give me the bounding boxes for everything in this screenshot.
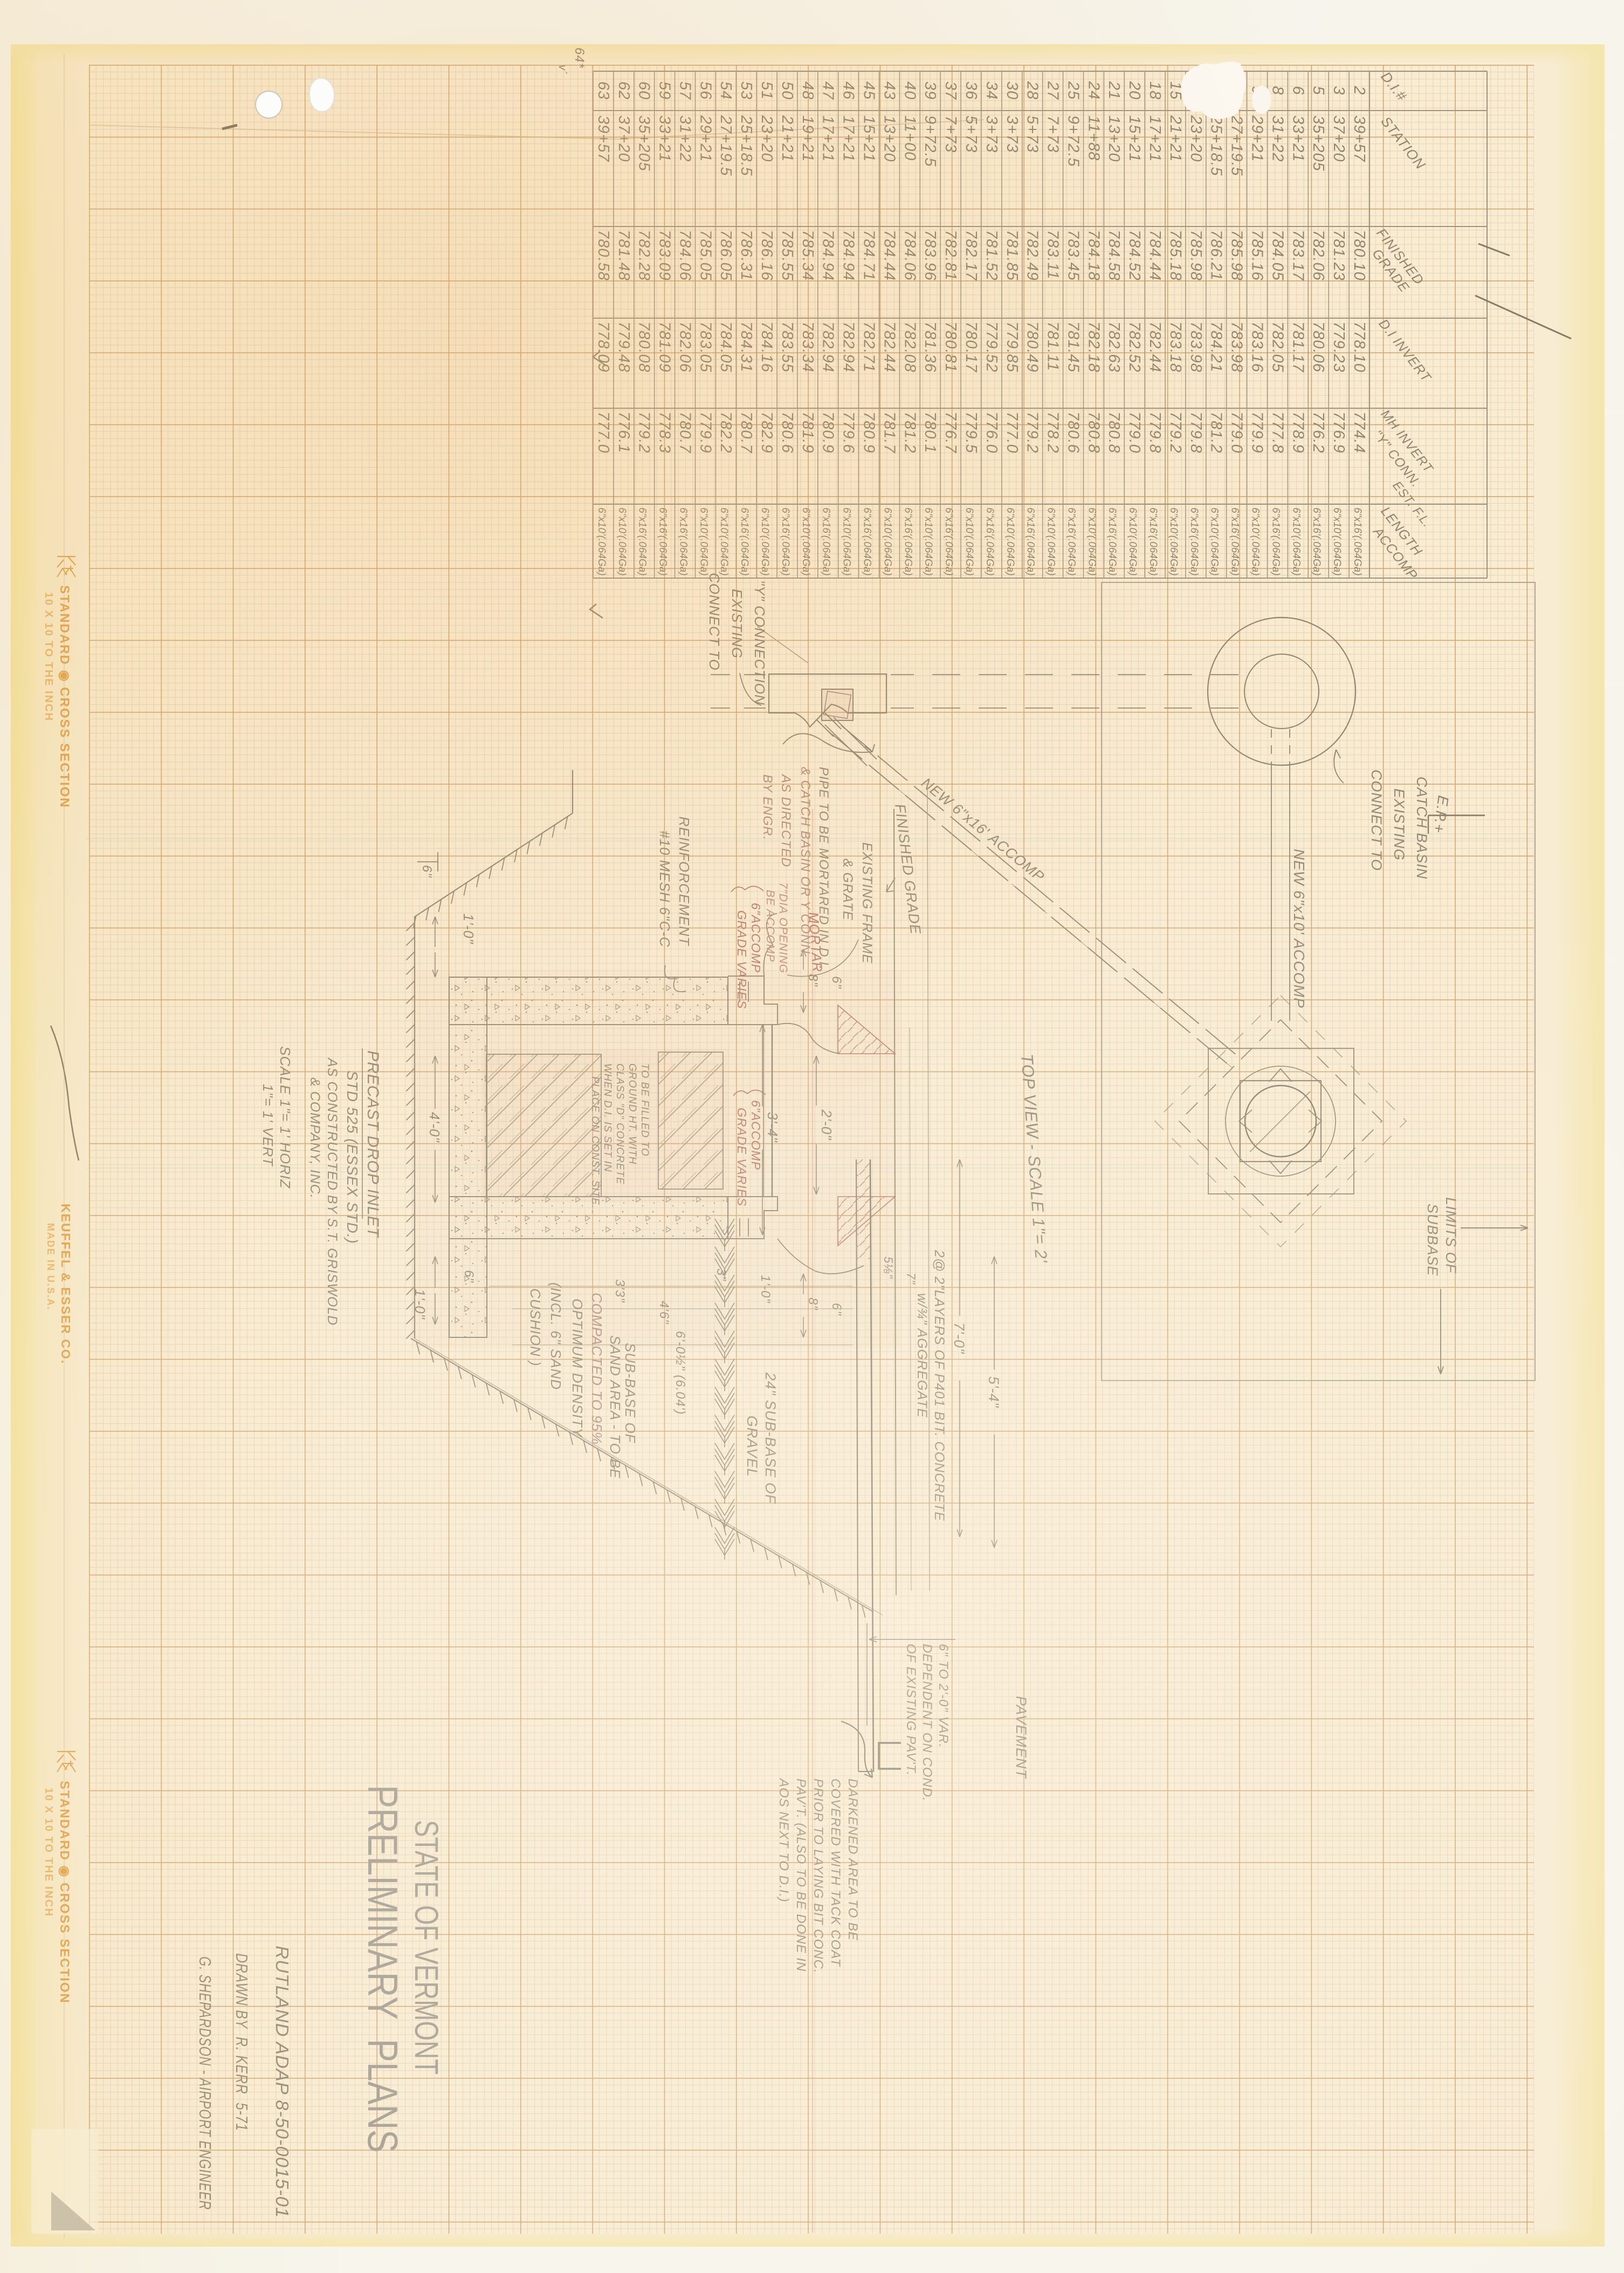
svg-text:784.05: 784.05: [1269, 230, 1286, 281]
svg-text:59: 59: [656, 81, 673, 100]
svg-text:782.17: 782.17: [962, 230, 980, 281]
svg-text:GRADE VARIES: GRADE VARIES: [735, 910, 749, 1009]
svg-text:780.58: 780.58: [595, 230, 612, 281]
svg-text:40: 40: [901, 81, 918, 100]
svg-text:19+21: 19+21: [799, 115, 816, 162]
svg-text:782.44: 782.44: [1146, 321, 1164, 373]
svg-text:29+21: 29+21: [1248, 115, 1265, 162]
svg-text:6"x10'(.064Ga): 6"x10'(.064Ga): [596, 507, 607, 576]
svg-text:WHEN D.I. IS SET IN: WHEN D.I. IS SET IN: [602, 1063, 613, 1172]
svg-text:CONNECT TO: CONNECT TO: [1368, 770, 1385, 871]
svg-text:EXISTING: EXISTING: [729, 589, 745, 658]
svg-text:28: 28: [1024, 81, 1041, 100]
svg-text:2: 2: [1351, 85, 1368, 95]
svg-text:STATION: STATION: [1378, 113, 1429, 173]
svg-text:778.9: 778.9: [1289, 411, 1306, 454]
svg-text:781.7: 781.7: [880, 411, 898, 454]
svg-text:784.31: 784.31: [738, 321, 755, 373]
svg-text:783.11: 783.11: [1044, 230, 1062, 280]
svg-text:781.11: 781.11: [1044, 321, 1062, 372]
svg-text:786.05: 786.05: [717, 230, 734, 281]
svg-text:778.3: 778.3: [656, 411, 673, 454]
svg-text:779.0: 779.0: [1126, 411, 1143, 454]
svg-text:DRAWN BY R. KERR 5-71: DRAWN BY R. KERR 5-71: [232, 1953, 251, 2131]
svg-text:6"x16'(.064Ga): 6"x16'(.064Ga): [1106, 507, 1118, 576]
svg-text:COMPACTED TO 95%: COMPACTED TO 95%: [589, 1293, 605, 1445]
svg-text:6"x16'(.064Ga): 6"x16'(.064Ga): [1270, 507, 1281, 576]
svg-text:33+21: 33+21: [1289, 115, 1306, 162]
svg-text:23+20: 23+20: [758, 115, 775, 162]
svg-text:780.9: 780.9: [860, 411, 877, 454]
svg-text:6": 6": [462, 1270, 476, 1283]
svg-text:781.45: 781.45: [1064, 321, 1082, 373]
svg-text:15+21: 15+21: [1126, 115, 1143, 162]
svg-text:3+73: 3+73: [983, 115, 1000, 153]
svg-text:5+73: 5+73: [1024, 115, 1041, 153]
svg-text:2'-0": 2'-0": [818, 1109, 835, 1141]
svg-text:9+72.5: 9+72.5: [921, 115, 939, 167]
svg-text:784.05: 784.05: [717, 321, 734, 373]
svg-text:7": 7": [904, 1273, 918, 1285]
svg-text:782.08: 782.08: [901, 321, 918, 373]
svg-text:782.44: 782.44: [880, 321, 898, 373]
svg-text:1'-0": 1'-0": [758, 1275, 773, 1303]
svg-text:43: 43: [880, 81, 898, 100]
svg-text:776.2: 776.2: [1310, 411, 1327, 454]
svg-text:780.8: 780.8: [1085, 411, 1102, 454]
svg-text:7+73: 7+73: [942, 115, 959, 153]
svg-text:E.P.+: E.P.+: [1430, 794, 1452, 834]
svg-text:37+20: 37+20: [615, 115, 632, 162]
svg-text:(INCL. 6" SAND: (INCL. 6" SAND: [548, 1282, 564, 1390]
svg-text:v´: v´: [556, 65, 568, 75]
svg-text:13+20: 13+20: [880, 115, 898, 162]
svg-text:6"x10'(.064Ga): 6"x10'(.064Ga): [1249, 507, 1261, 576]
svg-text:& GRATE: & GRATE: [840, 859, 855, 921]
svg-text:781.36: 781.36: [921, 321, 939, 373]
svg-text:AOS NEXT TO D.I.): AOS NEXT TO D.I.): [776, 1777, 791, 1903]
svg-text:6"x10'(.064Ga): 6"x10'(.064Ga): [1290, 507, 1302, 576]
svg-text:PAV'T. (ALSO TO BE DONE IN: PAV'T. (ALSO TO BE DONE IN: [794, 1778, 808, 1972]
svg-text:6"x16'(.064Ga): 6"x16'(.064Ga): [1229, 507, 1241, 576]
svg-text:6"x10'(.064Ga): 6"x10'(.064Ga): [698, 507, 709, 576]
svg-text:27+19.5: 27+19.5: [1228, 115, 1245, 176]
svg-text:27+19.5: 27+19.5: [717, 115, 734, 176]
svg-text:21+21: 21+21: [1167, 115, 1184, 162]
svg-text:783.05: 783.05: [697, 321, 714, 373]
svg-text:25+18.5: 25+18.5: [1208, 115, 1225, 176]
svg-text:PRECAST DROP INLET: PRECAST DROP INLET: [364, 1050, 382, 1239]
svg-text:5⅛": 5⅛": [882, 1256, 895, 1279]
svg-text:OF EXISTING PAV'T.: OF EXISTING PAV'T.: [904, 1644, 918, 1776]
svg-text:784.44: 784.44: [1146, 230, 1164, 281]
svg-text:3+73: 3+73: [1003, 115, 1021, 153]
svg-text:CUSHION ): CUSHION ): [527, 1288, 543, 1366]
svg-text:783.16: 783.16: [1248, 321, 1265, 373]
svg-text:782.9: 782.9: [758, 411, 775, 454]
svg-text:4'6": 4'6": [657, 1301, 671, 1324]
svg-text:783.98: 783.98: [1187, 321, 1205, 373]
svg-text:AS CONSTRUCTED BY S.T. GRISWOL: AS CONSTRUCTED BY S.T. GRISWOLD: [325, 1057, 340, 1326]
svg-text:779.23: 779.23: [1330, 321, 1347, 373]
svg-text:784.94: 784.94: [820, 230, 837, 281]
svg-text:15+21: 15+21: [860, 115, 877, 162]
svg-text:39+57: 39+57: [595, 115, 612, 162]
svg-text:6"x16'(.064Ga): 6"x16'(.064Ga): [902, 507, 913, 576]
svg-text:37: 37: [942, 81, 959, 100]
svg-text:784.94: 784.94: [840, 230, 857, 281]
svg-text:785.05: 785.05: [697, 230, 714, 281]
svg-text:6"x10'(.064Ga): 6"x10'(.064Ga): [1127, 507, 1138, 576]
svg-text:& COMPANY, INC.: & COMPANY, INC.: [307, 1077, 322, 1199]
svg-text:#10 MESH 6"C-C: #10 MESH 6"C-C: [657, 830, 673, 947]
svg-text:777.0: 777.0: [595, 411, 612, 454]
svg-text:782.2: 782.2: [717, 411, 734, 454]
svg-text:17+21: 17+21: [1146, 115, 1164, 162]
svg-text:780.7: 780.7: [676, 411, 693, 454]
svg-text:781.52: 781.52: [983, 230, 1000, 281]
svg-text:NEW 6"x10' ACCOMP: NEW 6"x10' ACCOMP: [1291, 849, 1308, 1008]
svg-text:STD 525 (ESSEX STD.): STD 525 (ESSEX STD.): [344, 1070, 361, 1244]
svg-text:27: 27: [1044, 81, 1062, 100]
svg-text:BY ENGR.: BY ENGR.: [760, 774, 775, 840]
svg-text:784.06: 784.06: [901, 230, 918, 281]
svg-text:780.17: 780.17: [962, 321, 980, 373]
svg-text:PAVEMENT: PAVEMENT: [1013, 1696, 1029, 1780]
svg-text:779.9: 779.9: [697, 411, 714, 454]
svg-text:11+00: 11+00: [901, 115, 918, 161]
svg-text:33+21: 33+21: [656, 115, 673, 162]
svg-text:782.52: 782.52: [1126, 321, 1143, 373]
svg-text:779.2: 779.2: [636, 411, 653, 454]
svg-text:782.71: 782.71: [860, 321, 877, 373]
svg-text:780.49: 780.49: [1024, 321, 1041, 373]
svg-text:782.05: 782.05: [1269, 321, 1286, 373]
svg-text:780.6: 780.6: [779, 411, 796, 454]
svg-text:779.5: 779.5: [962, 411, 980, 454]
svg-text:"Y" CONNECTION: "Y" CONNECTION: [752, 580, 768, 705]
svg-text:6"x16'(.064Ga): 6"x16'(.064Ga): [1188, 507, 1200, 576]
svg-text:18: 18: [1146, 81, 1164, 100]
svg-text:23+20: 23+20: [1187, 115, 1205, 162]
svg-text:786.16: 786.16: [758, 230, 775, 281]
svg-text:46: 46: [840, 81, 857, 100]
svg-text:6"x10'(.064Ga): 6"x10'(.064Ga): [1045, 507, 1057, 576]
svg-text:781.9: 781.9: [799, 411, 816, 454]
svg-text:REINFORCEMENT: REINFORCEMENT: [676, 816, 692, 946]
svg-text:CLASS "D" CONCRETE: CLASS "D" CONCRETE: [614, 1063, 625, 1185]
svg-text:6"x16'(.064Ga): 6"x16'(.064Ga): [677, 507, 689, 576]
svg-text:785.98: 785.98: [1187, 230, 1205, 281]
svg-text:KEUFFEL & ESSER CO.: KEUFFEL & ESSER CO.: [59, 1204, 73, 1364]
svg-text:785.18: 785.18: [1167, 230, 1184, 281]
svg-text:6" TO 2'-0" VAR.: 6" TO 2'-0" VAR.: [936, 1644, 951, 1748]
svg-text:777.8: 777.8: [1269, 411, 1286, 454]
svg-text:53: 53: [738, 81, 755, 100]
svg-text:6"x16'(.064Ga): 6"x16'(.064Ga): [861, 507, 872, 576]
svg-text:783.17: 783.17: [1289, 230, 1306, 281]
svg-text:6"x10'(.064Ga): 6"x10'(.064Ga): [1209, 507, 1220, 576]
svg-text:779.2: 779.2: [1167, 411, 1184, 454]
svg-text:SUB-BASE OF: SUB-BASE OF: [622, 1343, 638, 1444]
svg-text:783.18: 783.18: [1167, 321, 1184, 373]
svg-text:6"x16'(.064Ga): 6"x16'(.064Ga): [637, 507, 648, 576]
svg-text:781.85: 781.85: [1003, 230, 1021, 281]
svg-text:1"= 1' VERT: 1"= 1' VERT: [260, 1084, 276, 1167]
svg-text:6"ACCOMP: 6"ACCOMP: [749, 903, 763, 973]
svg-text:6"x10'(.064Ga): 6"x10'(.064Ga): [841, 507, 852, 576]
svg-text:778.2: 778.2: [1044, 411, 1062, 454]
svg-text:786.21: 786.21: [1208, 230, 1225, 281]
svg-text:784.21: 784.21: [1208, 321, 1225, 373]
svg-text:779.52: 779.52: [983, 321, 1000, 373]
svg-text:780.1: 780.1: [921, 411, 939, 454]
svg-text:OPTIMUM DENSITY: OPTIMUM DENSITY: [569, 1299, 586, 1438]
svg-text:778.10: 778.10: [1351, 321, 1368, 373]
svg-text:6"x16'(.064Ga): 6"x16'(.064Ga): [1025, 507, 1036, 576]
svg-text:TOP VIEW - SCALE 1"= 2': TOP VIEW - SCALE 1"= 2': [1017, 1053, 1051, 1263]
svg-text:6"x10'(.064Ga): 6"x10'(.064Ga): [923, 507, 934, 576]
svg-text:6"x16'(.064Ga): 6"x16'(.064Ga): [821, 507, 832, 576]
svg-text:779.2: 779.2: [1024, 411, 1041, 454]
svg-text:780.8: 780.8: [1105, 411, 1123, 454]
svg-text:782.94: 782.94: [820, 321, 837, 373]
svg-text:7"DIA OPENING: 7"DIA OPENING: [777, 882, 789, 973]
svg-text:781.23: 781.23: [1330, 230, 1347, 281]
svg-text:64*: 64*: [572, 47, 587, 68]
svg-text:62: 62: [615, 81, 632, 100]
svg-text:782.94: 782.94: [840, 321, 857, 373]
svg-text:PLACE ON CONST. SITE.: PLACE ON CONST. SITE.: [589, 1076, 601, 1208]
svg-text:776.1: 776.1: [615, 411, 632, 454]
svg-text:782.18: 782.18: [1085, 321, 1102, 373]
svg-text:780.6: 780.6: [1064, 411, 1082, 454]
svg-text:56: 56: [697, 81, 714, 100]
svg-text:782.49: 782.49: [1024, 230, 1041, 281]
svg-text:SUBBASE: SUBBASE: [1425, 1204, 1441, 1276]
svg-text:FINISHED GRADE: FINISHED GRADE: [892, 803, 924, 935]
svg-text:784.06: 784.06: [676, 230, 693, 281]
svg-text:6'-0½" (6.04'): 6'-0½" (6.04'): [673, 1331, 687, 1415]
svg-text:779.8: 779.8: [1146, 411, 1164, 454]
svg-text:6"x16'(.064Ga): 6"x16'(.064Ga): [1147, 507, 1159, 576]
svg-text:5+73: 5+73: [962, 115, 980, 153]
svg-text:57: 57: [676, 81, 693, 100]
svg-text:6"x16'(.064Ga): 6"x16'(.064Ga): [657, 507, 669, 576]
svg-text:10 X 10 TO THE INCH: 10 X 10 TO THE INCH: [43, 592, 54, 722]
svg-text:13+20: 13+20: [1105, 115, 1123, 162]
svg-text:CONNECT TO: CONNECT TO: [706, 573, 722, 670]
svg-text:31+22: 31+22: [1269, 115, 1286, 162]
svg-text:25: 25: [1064, 81, 1082, 100]
svg-text:783.96: 783.96: [921, 230, 939, 281]
svg-text:COVERED WITH TACK COAT: COVERED WITH TACK COAT: [828, 1778, 843, 1967]
svg-text:11+88: 11+88: [1085, 115, 1102, 161]
svg-text:784.52: 784.52: [1126, 230, 1143, 281]
svg-text:21: 21: [1105, 81, 1123, 100]
svg-text:47: 47: [820, 81, 837, 100]
svg-text:5'-4": 5'-4": [986, 1376, 1002, 1408]
svg-text:34: 34: [983, 81, 1000, 100]
svg-text:39: 39: [921, 81, 939, 100]
svg-text:29+21: 29+21: [697, 115, 714, 162]
svg-text:45: 45: [860, 81, 877, 100]
svg-text:48: 48: [799, 81, 816, 100]
svg-text:6"x10'(.064Ga): 6"x10'(.064Ga): [1086, 507, 1097, 576]
svg-text:17+21: 17+21: [820, 115, 837, 162]
svg-text:778.09: 778.09: [595, 321, 612, 373]
svg-text:35+205: 35+205: [636, 115, 653, 171]
svg-text:781.2: 781.2: [901, 411, 918, 454]
svg-text:STATE OF VERMONT: STATE OF VERMONT: [408, 1820, 445, 2075]
svg-text:782.06: 782.06: [1310, 230, 1327, 281]
svg-text:6"x10'(.064Ga): 6"x10'(.064Ga): [1168, 507, 1179, 576]
svg-text:776.7: 776.7: [942, 411, 959, 454]
svg-text:779.0: 779.0: [1228, 411, 1245, 454]
svg-text:GRADE VARIES: GRADE VARIES: [735, 1108, 749, 1206]
svg-text:774.4: 774.4: [1351, 411, 1368, 454]
svg-text:779.6: 779.6: [840, 411, 857, 454]
svg-text:9+72.5: 9+72.5: [1064, 115, 1082, 167]
svg-text:AS DIRECTED: AS DIRECTED: [779, 773, 793, 867]
svg-text:779.9: 779.9: [1248, 411, 1265, 454]
svg-text:785.55: 785.55: [779, 230, 796, 281]
svg-text:785.34: 785.34: [799, 230, 816, 281]
svg-text:783.45: 783.45: [1064, 230, 1082, 281]
svg-text:785.98: 785.98: [1228, 230, 1245, 281]
svg-text:w/¾" AGGREGATE: w/¾" AGGREGATE: [914, 1293, 930, 1418]
svg-text:GRAVEL: GRAVEL: [744, 1416, 760, 1477]
svg-text:6"x10'(.064Ga): 6"x10'(.064Ga): [1331, 507, 1343, 576]
svg-text:6"ACCOMP: 6"ACCOMP: [749, 1100, 763, 1170]
svg-text:CATCH BASIN: CATCH BASIN: [1414, 777, 1430, 880]
svg-text:60: 60: [636, 81, 653, 100]
svg-text:782.81: 782.81: [942, 230, 959, 281]
svg-text:1'-0": 1'-0": [460, 914, 477, 945]
svg-text:17+21: 17+21: [840, 115, 857, 162]
svg-text:TO BE FILLED TO: TO BE FILLED TO: [639, 1063, 650, 1157]
svg-text:D.I INVERT: D.I INVERT: [1375, 316, 1434, 385]
svg-text:781.2: 781.2: [1208, 411, 1225, 454]
svg-text:6"x16'(.064Ga): 6"x16'(.064Ga): [739, 507, 750, 576]
svg-text:24: 24: [1085, 81, 1102, 100]
svg-text:3'-4": 3'-4": [765, 1112, 781, 1143]
svg-text:780.81: 780.81: [942, 321, 959, 373]
svg-text:50: 50: [779, 81, 796, 100]
svg-text:784.44: 784.44: [880, 230, 898, 281]
svg-text:RUTLAND ADAP 8-50-0015-01: RUTLAND ADAP 8-50-0015-01: [272, 1946, 292, 2218]
svg-text:BE ACCOMP: BE ACCOMP: [764, 890, 776, 962]
svg-text:786.31: 786.31: [738, 230, 755, 281]
svg-text:6"x10'(.064Ga): 6"x10'(.064Ga): [964, 507, 975, 576]
svg-text:776.0: 776.0: [983, 411, 1000, 454]
svg-text:779.48: 779.48: [615, 321, 632, 373]
svg-text:6": 6": [829, 1303, 844, 1316]
svg-text:39+57: 39+57: [1351, 115, 1368, 162]
svg-text:6"x16'(.064Ga): 6"x16'(.064Ga): [1352, 507, 1363, 576]
svg-text:777.0: 777.0: [1003, 411, 1021, 454]
svg-text:51: 51: [758, 81, 775, 100]
svg-text:2@ 2"LAYERS OF P401 BIT. CONCR: 2@ 2"LAYERS OF P401 BIT. CONCRETE: [932, 1249, 947, 1521]
svg-text:EXISTING FRAME: EXISTING FRAME: [859, 842, 875, 964]
svg-text:782.63: 782.63: [1105, 321, 1123, 373]
svg-text:3": 3": [714, 1268, 728, 1281]
svg-text:6"x10'(.064Ga): 6"x10'(.064Ga): [882, 507, 893, 576]
svg-text:6": 6": [419, 865, 434, 878]
svg-text:G. SHEPARDSON - AIRPORT ENGINE: G. SHEPARDSON - AIRPORT ENGINEER: [196, 1956, 215, 2210]
svg-text:6"x16'(.064Ga): 6"x16'(.064Ga): [943, 507, 954, 576]
svg-text:782.06: 782.06: [676, 321, 693, 373]
svg-text:54: 54: [717, 81, 734, 100]
svg-text:780.10: 780.10: [1351, 230, 1368, 281]
svg-text:780.06: 780.06: [1310, 321, 1327, 373]
svg-text:776.9: 776.9: [1330, 411, 1347, 454]
svg-text:PRIOR TO LAYING BIT CONC.: PRIOR TO LAYING BIT CONC.: [811, 1778, 825, 1974]
svg-text:782.28: 782.28: [636, 230, 653, 281]
svg-text:3: 3: [1330, 86, 1347, 95]
svg-text:37+20: 37+20: [1330, 115, 1347, 162]
svg-text:780.08: 780.08: [636, 321, 653, 373]
svg-text:7'-0": 7'-0": [951, 1322, 967, 1354]
svg-text:784.58: 784.58: [1105, 230, 1123, 281]
svg-text:MADE IN U.S.A.: MADE IN U.S.A.: [45, 1223, 56, 1310]
svg-text:783.98: 783.98: [1228, 321, 1245, 373]
svg-text:10 X 10 TO THE INCH: 10 X 10 TO THE INCH: [43, 1788, 54, 1917]
svg-text:784.16: 784.16: [758, 321, 775, 373]
svg-text:6"x10'(.064Ga): 6"x10'(.064Ga): [800, 507, 811, 576]
svg-text:6"x16'(.064Ga): 6"x16'(.064Ga): [984, 507, 995, 576]
svg-text:7+73: 7+73: [1044, 115, 1062, 153]
svg-text:784.18: 784.18: [1085, 230, 1102, 281]
svg-text:24" SUB-BASE OF: 24" SUB-BASE OF: [762, 1372, 779, 1504]
svg-text:1'-0": 1'-0": [412, 1289, 428, 1320]
svg-text:EXISTING: EXISTING: [1391, 788, 1407, 861]
svg-text:781.17: 781.17: [1289, 321, 1306, 373]
svg-text:783.34: 783.34: [799, 321, 816, 373]
svg-text:785.16: 785.16: [1248, 230, 1265, 281]
svg-text:DARKENED AREA TO BE: DARKENED AREA TO BE: [845, 1778, 860, 1941]
svg-text:779.85: 779.85: [1003, 321, 1021, 373]
svg-text:3'3": 3'3": [613, 1279, 627, 1303]
svg-text:DEPENDENT ON COND.: DEPENDENT ON COND.: [920, 1644, 934, 1802]
svg-text:6"x16'(.064Ga): 6"x16'(.064Ga): [780, 507, 791, 576]
svg-text:6: 6: [1289, 86, 1306, 95]
svg-text:5: 5: [1310, 86, 1327, 95]
svg-text:780.9: 780.9: [820, 411, 837, 454]
svg-text:31+22: 31+22: [676, 115, 693, 162]
svg-text:779.8: 779.8: [1187, 411, 1205, 454]
svg-text:4'-0": 4'-0": [426, 1112, 443, 1143]
svg-text:D.I.#: D.I.#: [1378, 68, 1410, 104]
svg-text:6"x10'(.064Ga): 6"x10'(.064Ga): [1004, 507, 1016, 576]
svg-text:NEW 6"x16' ACCOMP: NEW 6"x16' ACCOMP: [918, 774, 1048, 885]
svg-text:783.09: 783.09: [656, 230, 673, 281]
svg-text:6"x10'(.064Ga): 6"x10'(.064Ga): [759, 507, 770, 576]
svg-text:780.7: 780.7: [738, 411, 755, 454]
svg-text:LIMITS OF: LIMITS OF: [1443, 1197, 1459, 1274]
svg-text:36: 36: [962, 81, 980, 100]
svg-text:SAND AREA - TO BE: SAND AREA - TO BE: [607, 1335, 623, 1479]
svg-text:GROUND HT. WITH: GROUND HT. WITH: [627, 1063, 638, 1164]
svg-text:20: 20: [1126, 81, 1143, 100]
svg-text:6"x16'(.064Ga): 6"x16'(.064Ga): [1311, 507, 1322, 576]
svg-text:63: 63: [595, 81, 612, 100]
svg-text:30: 30: [1003, 81, 1021, 100]
svg-text:783.55: 783.55: [779, 321, 796, 373]
svg-text:PRELIMINARY PLANS: PRELIMINARY PLANS: [359, 1785, 407, 2153]
svg-text:8: 8: [1269, 86, 1286, 95]
svg-text:6"x10'(.064Ga): 6"x10'(.064Ga): [718, 507, 730, 576]
